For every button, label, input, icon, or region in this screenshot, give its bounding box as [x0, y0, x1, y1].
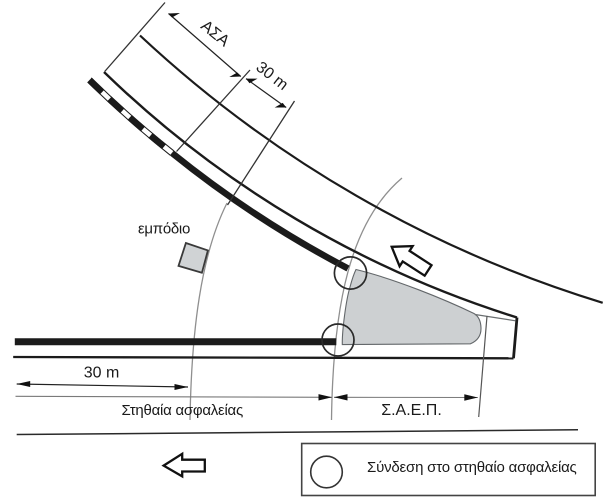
- svg-text:Στηθαία ασφαλείας: Στηθαία ασφαλείας: [121, 402, 243, 419]
- svg-text:Σ.Α.Ε.Π.: Σ.Α.Ε.Π.: [381, 402, 442, 419]
- svg-text:Σύνδεση στο στηθαίο ασφαλείας: Σύνδεση στο στηθαίο ασφαλείας: [367, 459, 577, 476]
- svg-text:εμπόδιο: εμπόδιο: [138, 221, 190, 238]
- svg-text:30 m: 30 m: [84, 365, 120, 382]
